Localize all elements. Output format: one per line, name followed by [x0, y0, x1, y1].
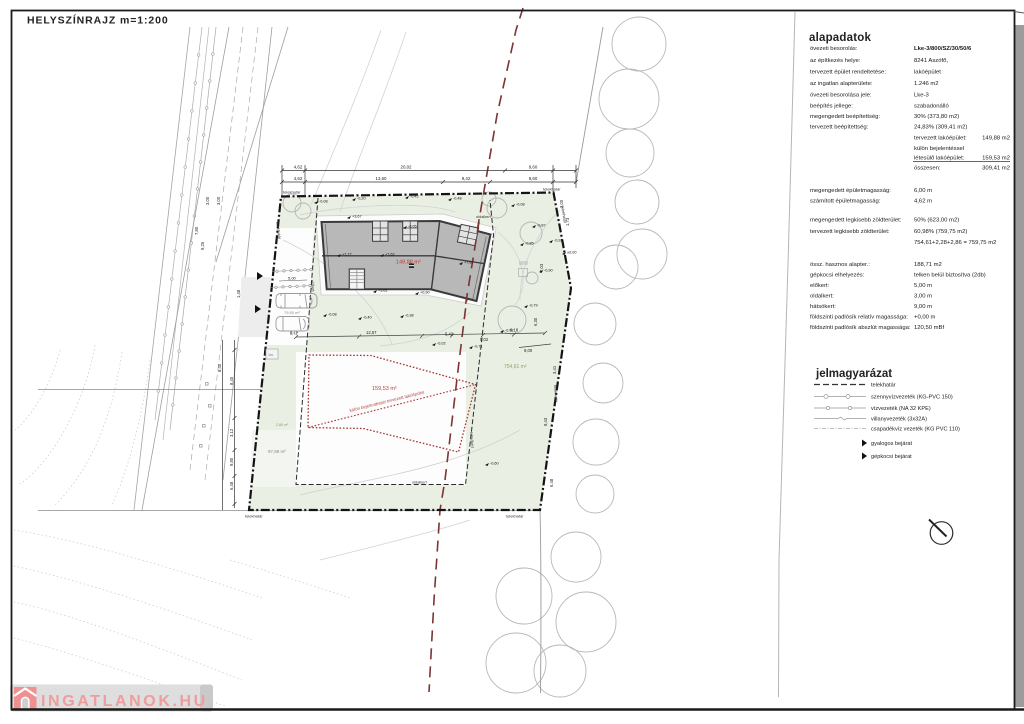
svg-text:8,40: 8,40 [217, 363, 222, 372]
svg-text:2,86 m²: 2,86 m² [276, 423, 289, 427]
svg-text:97,89 m²: 97,89 m² [268, 449, 286, 454]
svg-text:-0,90: -0,90 [544, 269, 553, 273]
svg-text:24,83% (309,41 m2): 24,83% (309,41 m2) [914, 125, 967, 131]
svg-text:6,30: 6,30 [533, 317, 538, 326]
svg-text:4,62: 4,62 [294, 165, 303, 170]
svg-text:tervezett épület rendeltetése:: tervezett épület rendeltetése: [810, 70, 886, 76]
svg-text:9,60: 9,60 [529, 176, 538, 181]
svg-text:79,50 m²: 79,50 m² [284, 310, 300, 315]
svg-text:3,00 m: 3,00 m [914, 294, 932, 300]
svg-text:4,62: 4,62 [294, 176, 303, 181]
svg-text:30% (373,80 m2): 30% (373,80 m2) [914, 114, 959, 120]
svg-text:tervezett lakóépület:: tervezett lakóépület: [914, 136, 967, 142]
svg-text:50% (623,00 m2): 50% (623,00 m2) [914, 218, 959, 224]
svg-text:-0,87: -0,87 [537, 224, 546, 228]
svg-text:megengedett legkisebb zöldterü: megengedett legkisebb zöldterület: [810, 218, 902, 224]
svg-text:telekhatár: telekhatár [543, 187, 561, 192]
svg-text:-0,05: -0,05 [408, 225, 417, 229]
svg-text:149,88 m²: 149,88 m² [396, 260, 421, 266]
svg-text:létesülő lakóépület:: létesülő lakóépület: [914, 156, 965, 162]
svg-text:földszinti padlósík abszlút ma: földszinti padlósík abszlút magassága: [810, 325, 911, 331]
svg-text:-0,48: -0,48 [453, 197, 462, 201]
svg-text:szennyvízvezeték (KG-PVC 150): szennyvízvezeték (KG-PVC 150) [871, 395, 953, 401]
svg-text:villanyvezeték (3x32A): villanyvezeték (3x32A) [871, 417, 927, 423]
svg-text:6,48: 6,48 [549, 478, 554, 487]
svg-text:309,41 m2: 309,41 m2 [982, 166, 1010, 172]
svg-text:6,48: 6,48 [229, 481, 234, 490]
svg-text:3,41: 3,41 [552, 365, 557, 374]
svg-text:-0,71: -0,71 [474, 345, 483, 349]
svg-text:159,53 m²: 159,53 m² [372, 386, 397, 392]
svg-text:+0,00 m: +0,00 m [914, 315, 936, 321]
svg-text:+7,62: +7,62 [385, 253, 395, 257]
svg-text:754,61 m²: 754,61 m² [504, 364, 527, 370]
svg-text:jelmagyarázat: jelmagyarázat [815, 368, 892, 380]
svg-text:INGATLANOK.HU: INGATLANOK.HU [41, 693, 208, 710]
svg-text:±0,00: ±0,00 [567, 251, 576, 255]
svg-text:oldalkert: oldalkert [412, 480, 428, 485]
svg-text:telekhatár: telekhatár [506, 514, 524, 519]
svg-text:gépkocsi bejárat: gépkocsi bejárat [871, 454, 912, 460]
svg-text:telekhatár: telekhatár [283, 190, 301, 195]
svg-text:övezeti besorolás:: övezeti besorolás: [810, 46, 858, 52]
svg-text:8241 Aszófő,: 8241 Aszófő, [914, 58, 948, 64]
svg-text:megengedett beépítettség:: megengedett beépítettség: [810, 114, 880, 120]
svg-text:hátsókert:: hátsókert: [810, 304, 836, 310]
svg-text:-0,02: -0,02 [437, 342, 446, 346]
svg-text:telken belül biztosítva (2db): telken belül biztosítva (2db) [914, 273, 986, 279]
svg-text:1,48: 1,48 [236, 289, 241, 298]
svg-text:5,00 m: 5,00 m [914, 283, 932, 289]
svg-text:tervezett legkisebb zöldterüle: tervezett legkisebb zöldterület: [810, 229, 890, 235]
svg-text:120,50 mBf: 120,50 mBf [914, 325, 944, 331]
svg-text:lakóépület: lakóépület [914, 70, 941, 76]
svg-text:-0,97: -0,97 [505, 329, 514, 333]
svg-text:megengedett épületmagasság:: megengedett épületmagasság: [810, 188, 891, 194]
svg-text:+7,77: +7,77 [342, 253, 352, 257]
svg-text:oldalkert:: oldalkert: [810, 294, 834, 300]
svg-text:gyalogos bejárat: gyalogos bejárat [871, 441, 912, 447]
svg-text:számított épületmagasság:: számított épületmagasság: [810, 199, 881, 205]
svg-text:gépkocsi elhelyezés:: gépkocsi elhelyezés: [810, 273, 865, 279]
svg-text:-0,60: -0,60 [490, 462, 499, 466]
svg-text:csapadékvíz vezeték (KG PVC 11: csapadékvíz vezeték (KG PVC 110) [871, 427, 960, 433]
svg-text:9,25: 9,25 [200, 241, 205, 250]
svg-text:9,00 m: 9,00 m [914, 304, 932, 310]
svg-text:övezeti besorolása jele:: övezeti besorolása jele: [810, 93, 872, 99]
svg-text:-0,08: -0,08 [328, 313, 337, 317]
svg-text:összesen:: összesen: [914, 166, 941, 172]
svg-text:-0,79: -0,79 [529, 304, 538, 308]
svg-text:Lke-3/800/SZ/30/50/6: Lke-3/800/SZ/30/50/6 [914, 46, 972, 52]
svg-text:oldalkert: oldalkert [476, 214, 492, 219]
svg-text:-0,42: -0,42 [410, 195, 419, 199]
svg-text:-0,08: -0,08 [516, 203, 525, 207]
svg-text:159,53 m2: 159,53 m2 [982, 156, 1010, 162]
svg-text:188,71 m2: 188,71 m2 [914, 262, 942, 268]
svg-text:8,74: 8,74 [290, 332, 297, 336]
svg-text:tervezett beépítettség:: tervezett beépítettség: [810, 125, 869, 131]
svg-text:földszinti padlósík relatív ma: földszinti padlósík relatív magassága: [810, 315, 908, 321]
svg-text:beépítés jellege:: beépítés jellege: [810, 104, 853, 110]
svg-text:3,00: 3,00 [205, 196, 210, 205]
svg-text:előkert:: előkert: [810, 283, 830, 289]
svg-text:3,00: 3,00 [559, 199, 564, 208]
svg-text:telekhatár: telekhatár [245, 514, 263, 519]
svg-text:Lke-3: Lke-3 [914, 93, 929, 99]
svg-text:külön bejelentéssel: külön bejelentéssel [914, 146, 964, 152]
svg-text:-0,08: -0,08 [319, 200, 328, 204]
svg-text:HELYSZÍNRAJZ m=1:200: HELYSZÍNRAJZ m=1:200 [27, 14, 169, 27]
svg-text:3,12: 3,12 [229, 428, 234, 437]
svg-text:12,57: 12,57 [366, 330, 377, 335]
svg-text:8,43: 8,43 [543, 417, 548, 426]
svg-text:+0,90: +0,90 [420, 291, 430, 295]
svg-text:-0,20: -0,20 [357, 197, 366, 201]
svg-text:149,88 m2: 149,88 m2 [982, 136, 1010, 142]
svg-text:vízvezeték (NA 32 KPE): vízvezeték (NA 32 KPE) [871, 406, 931, 412]
svg-text:össz. hasznos alapter.:: össz. hasznos alapter.: [810, 262, 870, 268]
svg-text:+7,87: +7,87 [464, 261, 474, 265]
svg-text:9,42: 9,42 [462, 176, 471, 181]
svg-text:telekhatár: telekhatár [871, 383, 896, 389]
svg-text:5,02: 5,02 [480, 337, 489, 342]
svg-text:9,60: 9,60 [529, 165, 538, 170]
svg-text:1.246 m2: 1.246 m2 [914, 81, 939, 87]
svg-text:-0,85: -0,85 [525, 242, 534, 246]
svg-text:9,00: 9,00 [524, 348, 533, 353]
svg-text:szabadonálló: szabadonálló [914, 104, 949, 110]
svg-text:-0,40: -0,40 [363, 316, 372, 320]
svg-text:1m.: 1m. [268, 353, 274, 357]
svg-text:1,73: 1,73 [565, 217, 570, 226]
svg-text:9,80: 9,80 [229, 457, 234, 466]
svg-text:6,00 m: 6,00 m [914, 188, 932, 194]
svg-text:-0,38: -0,38 [405, 314, 414, 318]
svg-text:+3,67: +3,67 [352, 215, 362, 219]
svg-text:13,60: 13,60 [376, 176, 388, 181]
svg-text:-0,92: -0,92 [554, 239, 563, 243]
svg-text:5,00: 5,00 [288, 276, 297, 281]
svg-text:az építkezés helye:: az építkezés helye: [810, 58, 861, 64]
svg-text:20,02: 20,02 [401, 165, 413, 170]
svg-text:60,98% (759,75 m2): 60,98% (759,75 m2) [914, 229, 967, 235]
svg-text:az ingatlan alapterülete:: az ingatlan alapterülete: [810, 81, 873, 87]
svg-text:+3,61: +3,61 [378, 289, 388, 293]
svg-text:754,61+2,28+2,86 = 759,75 m2: 754,61+2,28+2,86 = 759,75 m2 [914, 240, 996, 246]
svg-text:alapadatok: alapadatok [809, 32, 871, 44]
svg-text:3,00: 3,00 [216, 196, 221, 205]
svg-text:4,62 m: 4,62 m [914, 199, 932, 205]
svg-text:8,40: 8,40 [229, 376, 234, 385]
svg-text:7,80: 7,80 [194, 226, 199, 235]
svg-text:5,42: 5,42 [445, 332, 454, 337]
